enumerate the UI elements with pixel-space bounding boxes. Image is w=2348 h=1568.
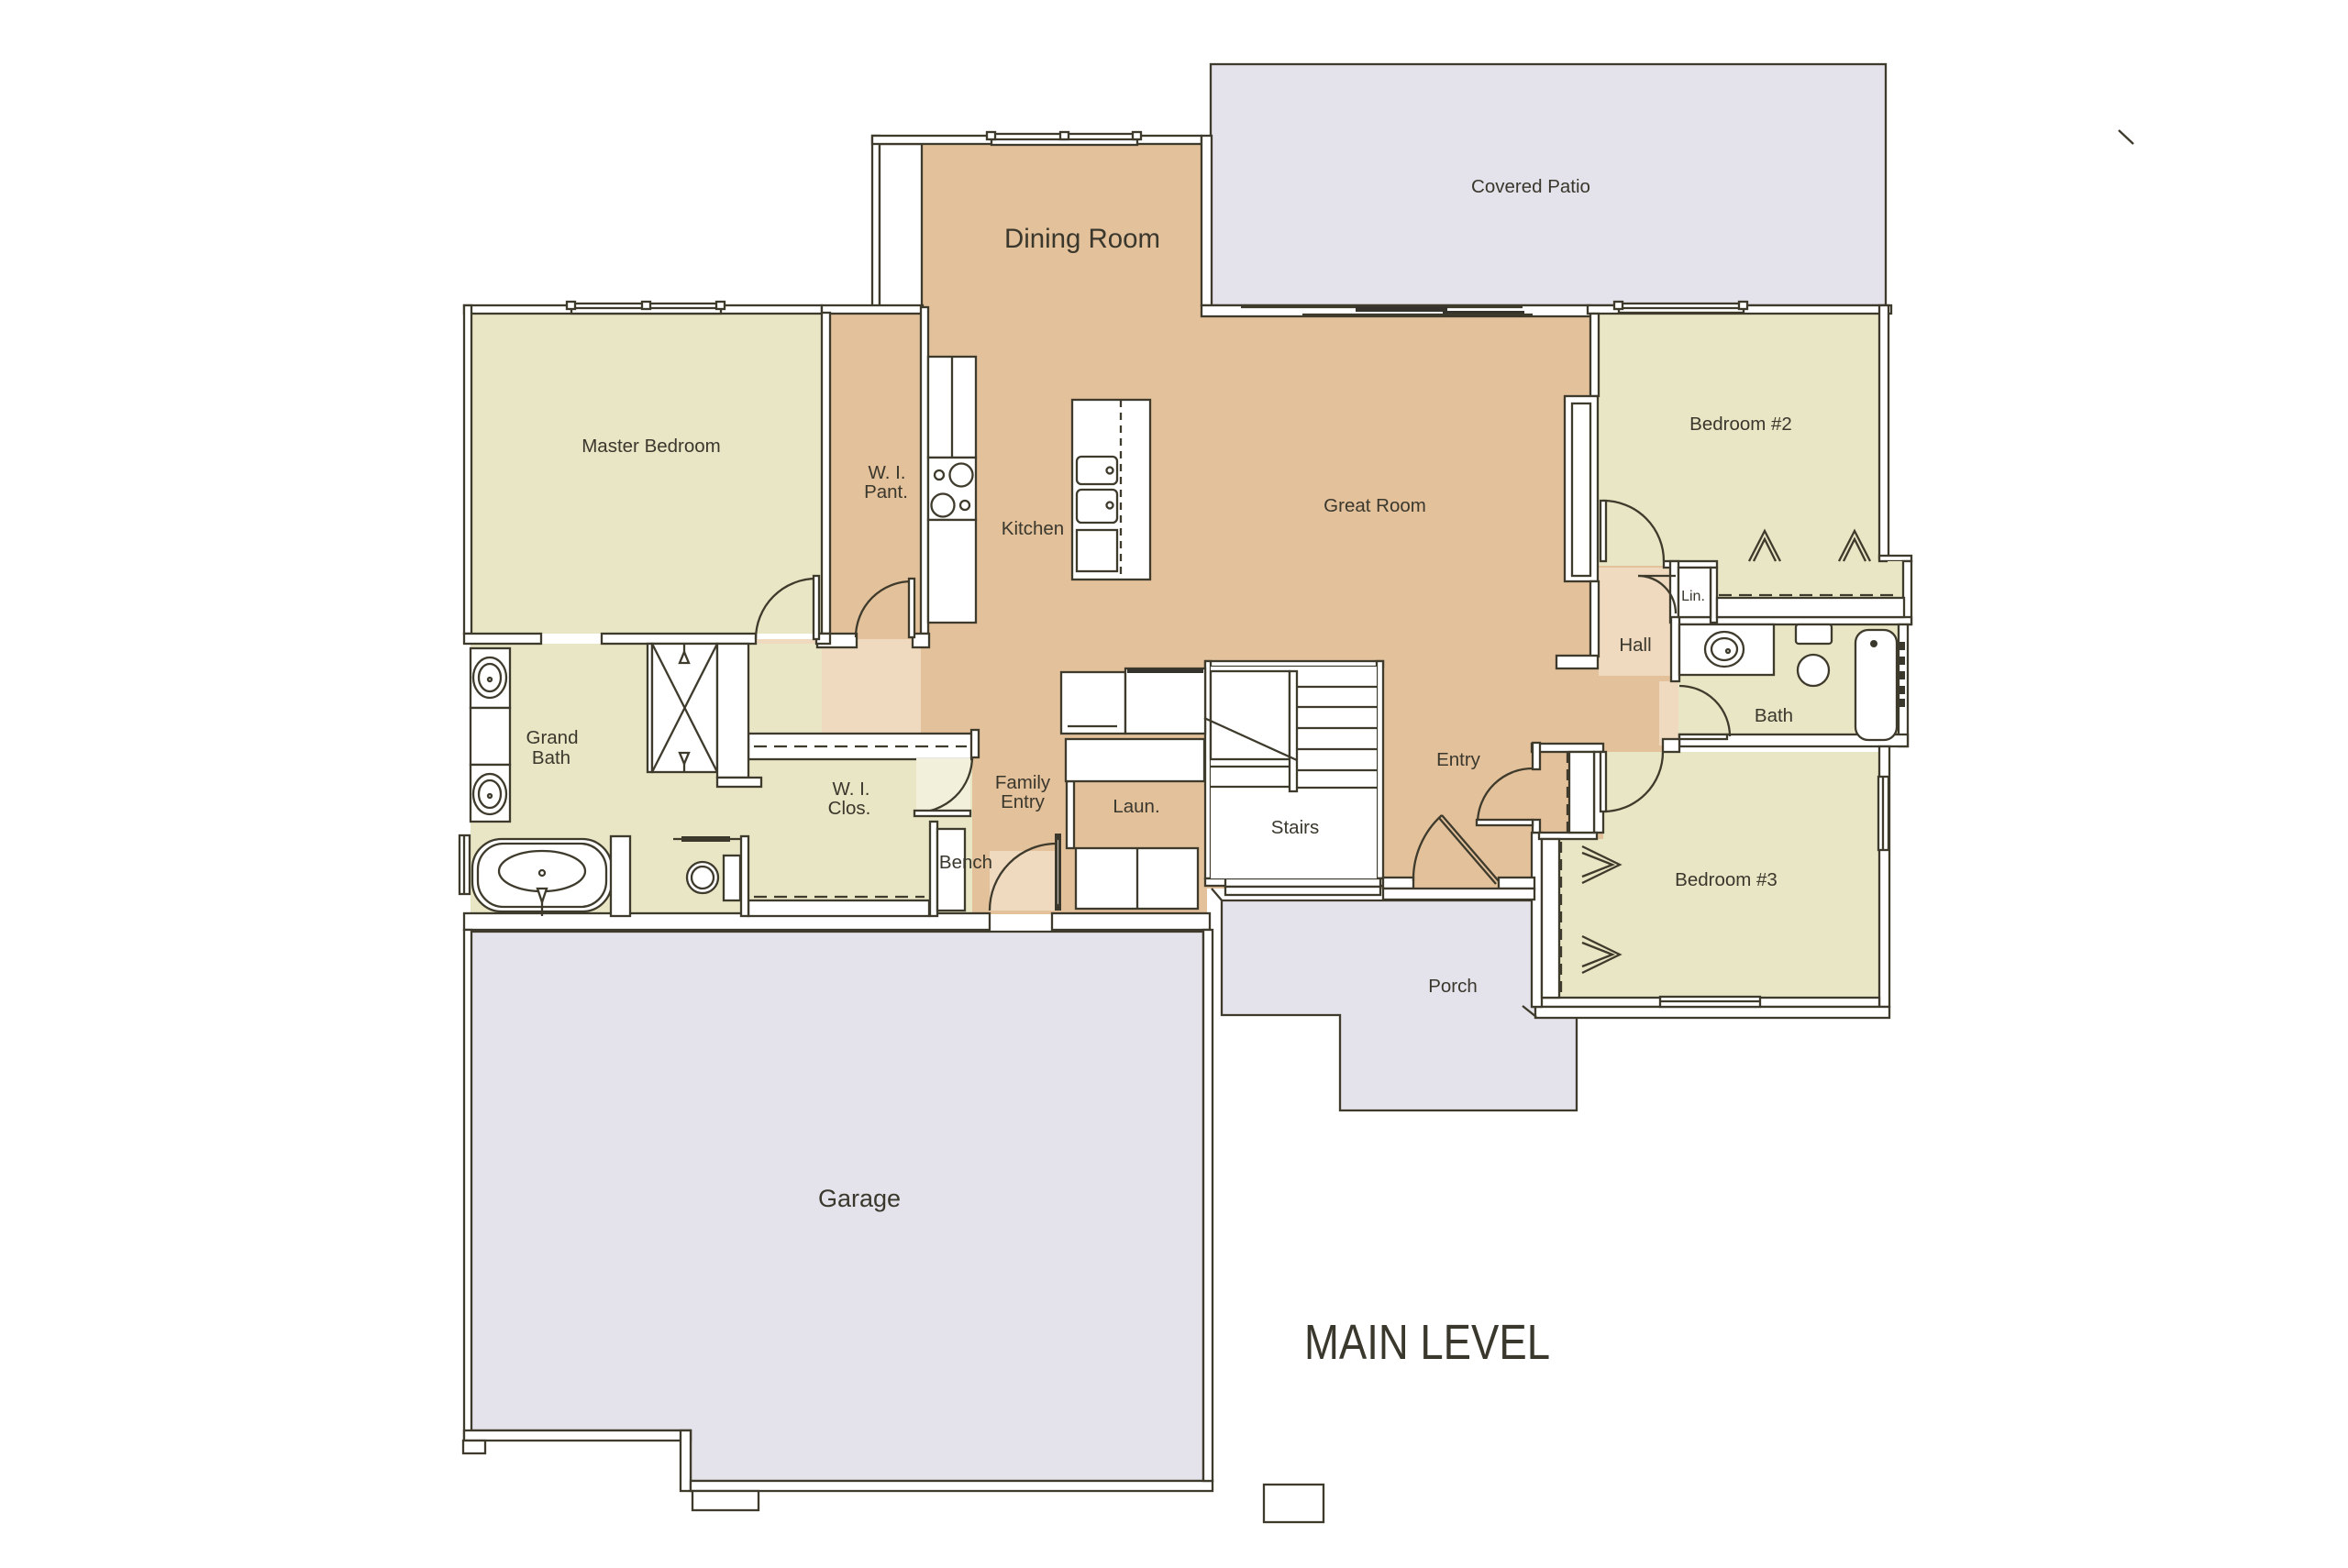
svg-text:Bath: Bath [1755,705,1793,726]
svg-text:Bedroom #2: Bedroom #2 [1689,414,1792,435]
svg-text:Grand: Grand [526,727,579,748]
svg-text:Family: Family [995,772,1051,793]
svg-text:Covered Patio: Covered Patio [1471,176,1590,197]
svg-text:Kitchen: Kitchen [1002,518,1064,539]
svg-text:Great Room: Great Room [1324,495,1426,516]
svg-text:Pant.: Pant. [864,481,908,502]
svg-text:Dining Room: Dining Room [1004,224,1160,254]
svg-text:Bath: Bath [532,747,570,768]
svg-text:Bench: Bench [939,852,992,873]
svg-text:W. I.: W. I. [869,462,906,483]
svg-text:W. I.: W. I. [833,778,870,800]
svg-text:MAIN LEVEL: MAIN LEVEL [1304,1315,1550,1370]
svg-text:Clos.: Clos. [828,798,871,819]
svg-text:Laun.: Laun. [1113,796,1159,817]
svg-text:Master Bedroom: Master Bedroom [581,436,721,457]
svg-text:Stairs: Stairs [1271,817,1319,838]
svg-text:Lin.: Lin. [1681,589,1705,604]
svg-text:Hall: Hall [1619,635,1651,656]
svg-text:Porch: Porch [1428,976,1478,997]
svg-text:Entry: Entry [1001,791,1046,812]
svg-text:Bedroom #3: Bedroom #3 [1675,869,1778,890]
svg-text:Garage: Garage [818,1185,901,1212]
svg-text:Entry: Entry [1436,749,1481,770]
